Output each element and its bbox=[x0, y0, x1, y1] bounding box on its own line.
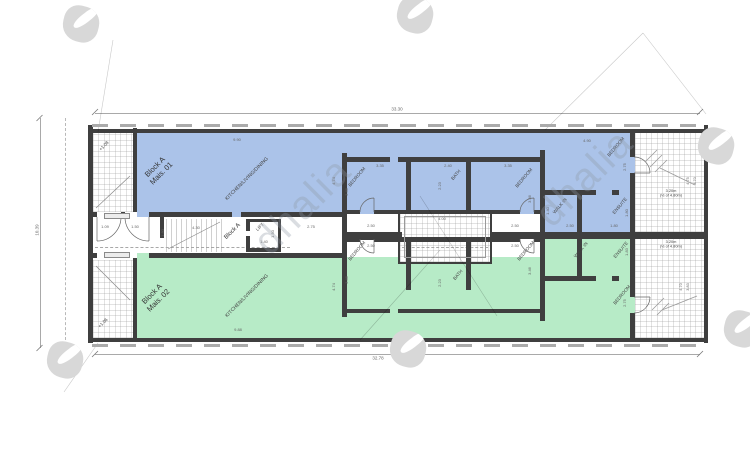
dimension-line bbox=[95, 113, 700, 114]
wall bbox=[374, 210, 396, 215]
wall bbox=[630, 238, 635, 297]
leader-line bbox=[98, 40, 113, 132]
wall bbox=[398, 309, 421, 314]
wall bbox=[630, 173, 635, 232]
wall bbox=[246, 248, 281, 252]
leader-line bbox=[64, 343, 98, 392]
setback-dashed-line bbox=[65, 118, 66, 350]
terrace-top bbox=[635, 133, 704, 233]
wall bbox=[246, 222, 250, 231]
wall bbox=[545, 276, 597, 281]
wall bbox=[612, 190, 619, 195]
wall bbox=[88, 338, 708, 342]
leader-line bbox=[545, 33, 643, 130]
wall bbox=[88, 212, 97, 217]
wall bbox=[88, 129, 708, 133]
wall bbox=[421, 309, 458, 314]
wall bbox=[92, 253, 97, 258]
terrace-bottom bbox=[635, 239, 704, 338]
wall bbox=[149, 253, 347, 258]
door-tag bbox=[104, 213, 130, 219]
overall-dim: 32.78 bbox=[372, 355, 383, 360]
wall bbox=[246, 219, 281, 223]
wall bbox=[133, 258, 138, 338]
dimension-line bbox=[95, 354, 700, 355]
corridor-area bbox=[347, 240, 399, 257]
wall bbox=[406, 162, 411, 210]
wall bbox=[342, 232, 402, 240]
stairwell-top-left bbox=[93, 133, 133, 213]
wall bbox=[466, 162, 471, 210]
wall bbox=[160, 217, 164, 238]
wall bbox=[458, 309, 481, 314]
wall bbox=[342, 238, 347, 317]
corridor-area bbox=[492, 239, 540, 257]
wall bbox=[577, 238, 582, 276]
window-band-bottom bbox=[92, 344, 704, 347]
wall bbox=[704, 125, 709, 343]
dimension-line bbox=[40, 118, 41, 348]
wall bbox=[246, 236, 250, 248]
floor-plan-sheet: Block A Mais. 01Block A Mais. 02KITCHEN/… bbox=[0, 0, 750, 450]
wall bbox=[630, 133, 635, 157]
stairwell-bottom-left bbox=[93, 260, 133, 338]
wall bbox=[133, 128, 138, 212]
wall bbox=[630, 313, 635, 338]
wall bbox=[545, 190, 597, 195]
wall bbox=[398, 211, 492, 213]
wall bbox=[612, 276, 619, 281]
wall bbox=[398, 262, 492, 264]
window-band-top bbox=[92, 124, 704, 127]
watermark-logo-icon bbox=[59, 2, 103, 46]
overall-dim: 33.30 bbox=[391, 106, 402, 111]
dim: 1.09 bbox=[101, 225, 109, 230]
wall bbox=[342, 153, 347, 233]
wall bbox=[278, 219, 282, 252]
wall bbox=[481, 157, 540, 162]
wall bbox=[347, 157, 391, 162]
watermark-logo-icon bbox=[393, 0, 437, 37]
wall bbox=[492, 232, 497, 240]
leader-line bbox=[643, 33, 706, 114]
courtyard-inner-line bbox=[404, 216, 486, 258]
wall bbox=[421, 157, 458, 162]
corridor-area bbox=[492, 214, 540, 232]
watermark-logo-icon bbox=[720, 307, 750, 351]
wall bbox=[347, 309, 391, 314]
wall bbox=[481, 309, 540, 314]
door-swing bbox=[97, 217, 121, 241]
overall-dim: 10.39 bbox=[34, 224, 39, 235]
corridor-area bbox=[347, 214, 399, 232]
wall bbox=[241, 212, 347, 217]
wall bbox=[497, 232, 704, 239]
wall bbox=[577, 195, 582, 232]
wall bbox=[347, 210, 361, 215]
wall bbox=[398, 211, 400, 264]
door-tag bbox=[104, 252, 130, 258]
wall bbox=[490, 211, 492, 264]
wall bbox=[88, 125, 93, 343]
